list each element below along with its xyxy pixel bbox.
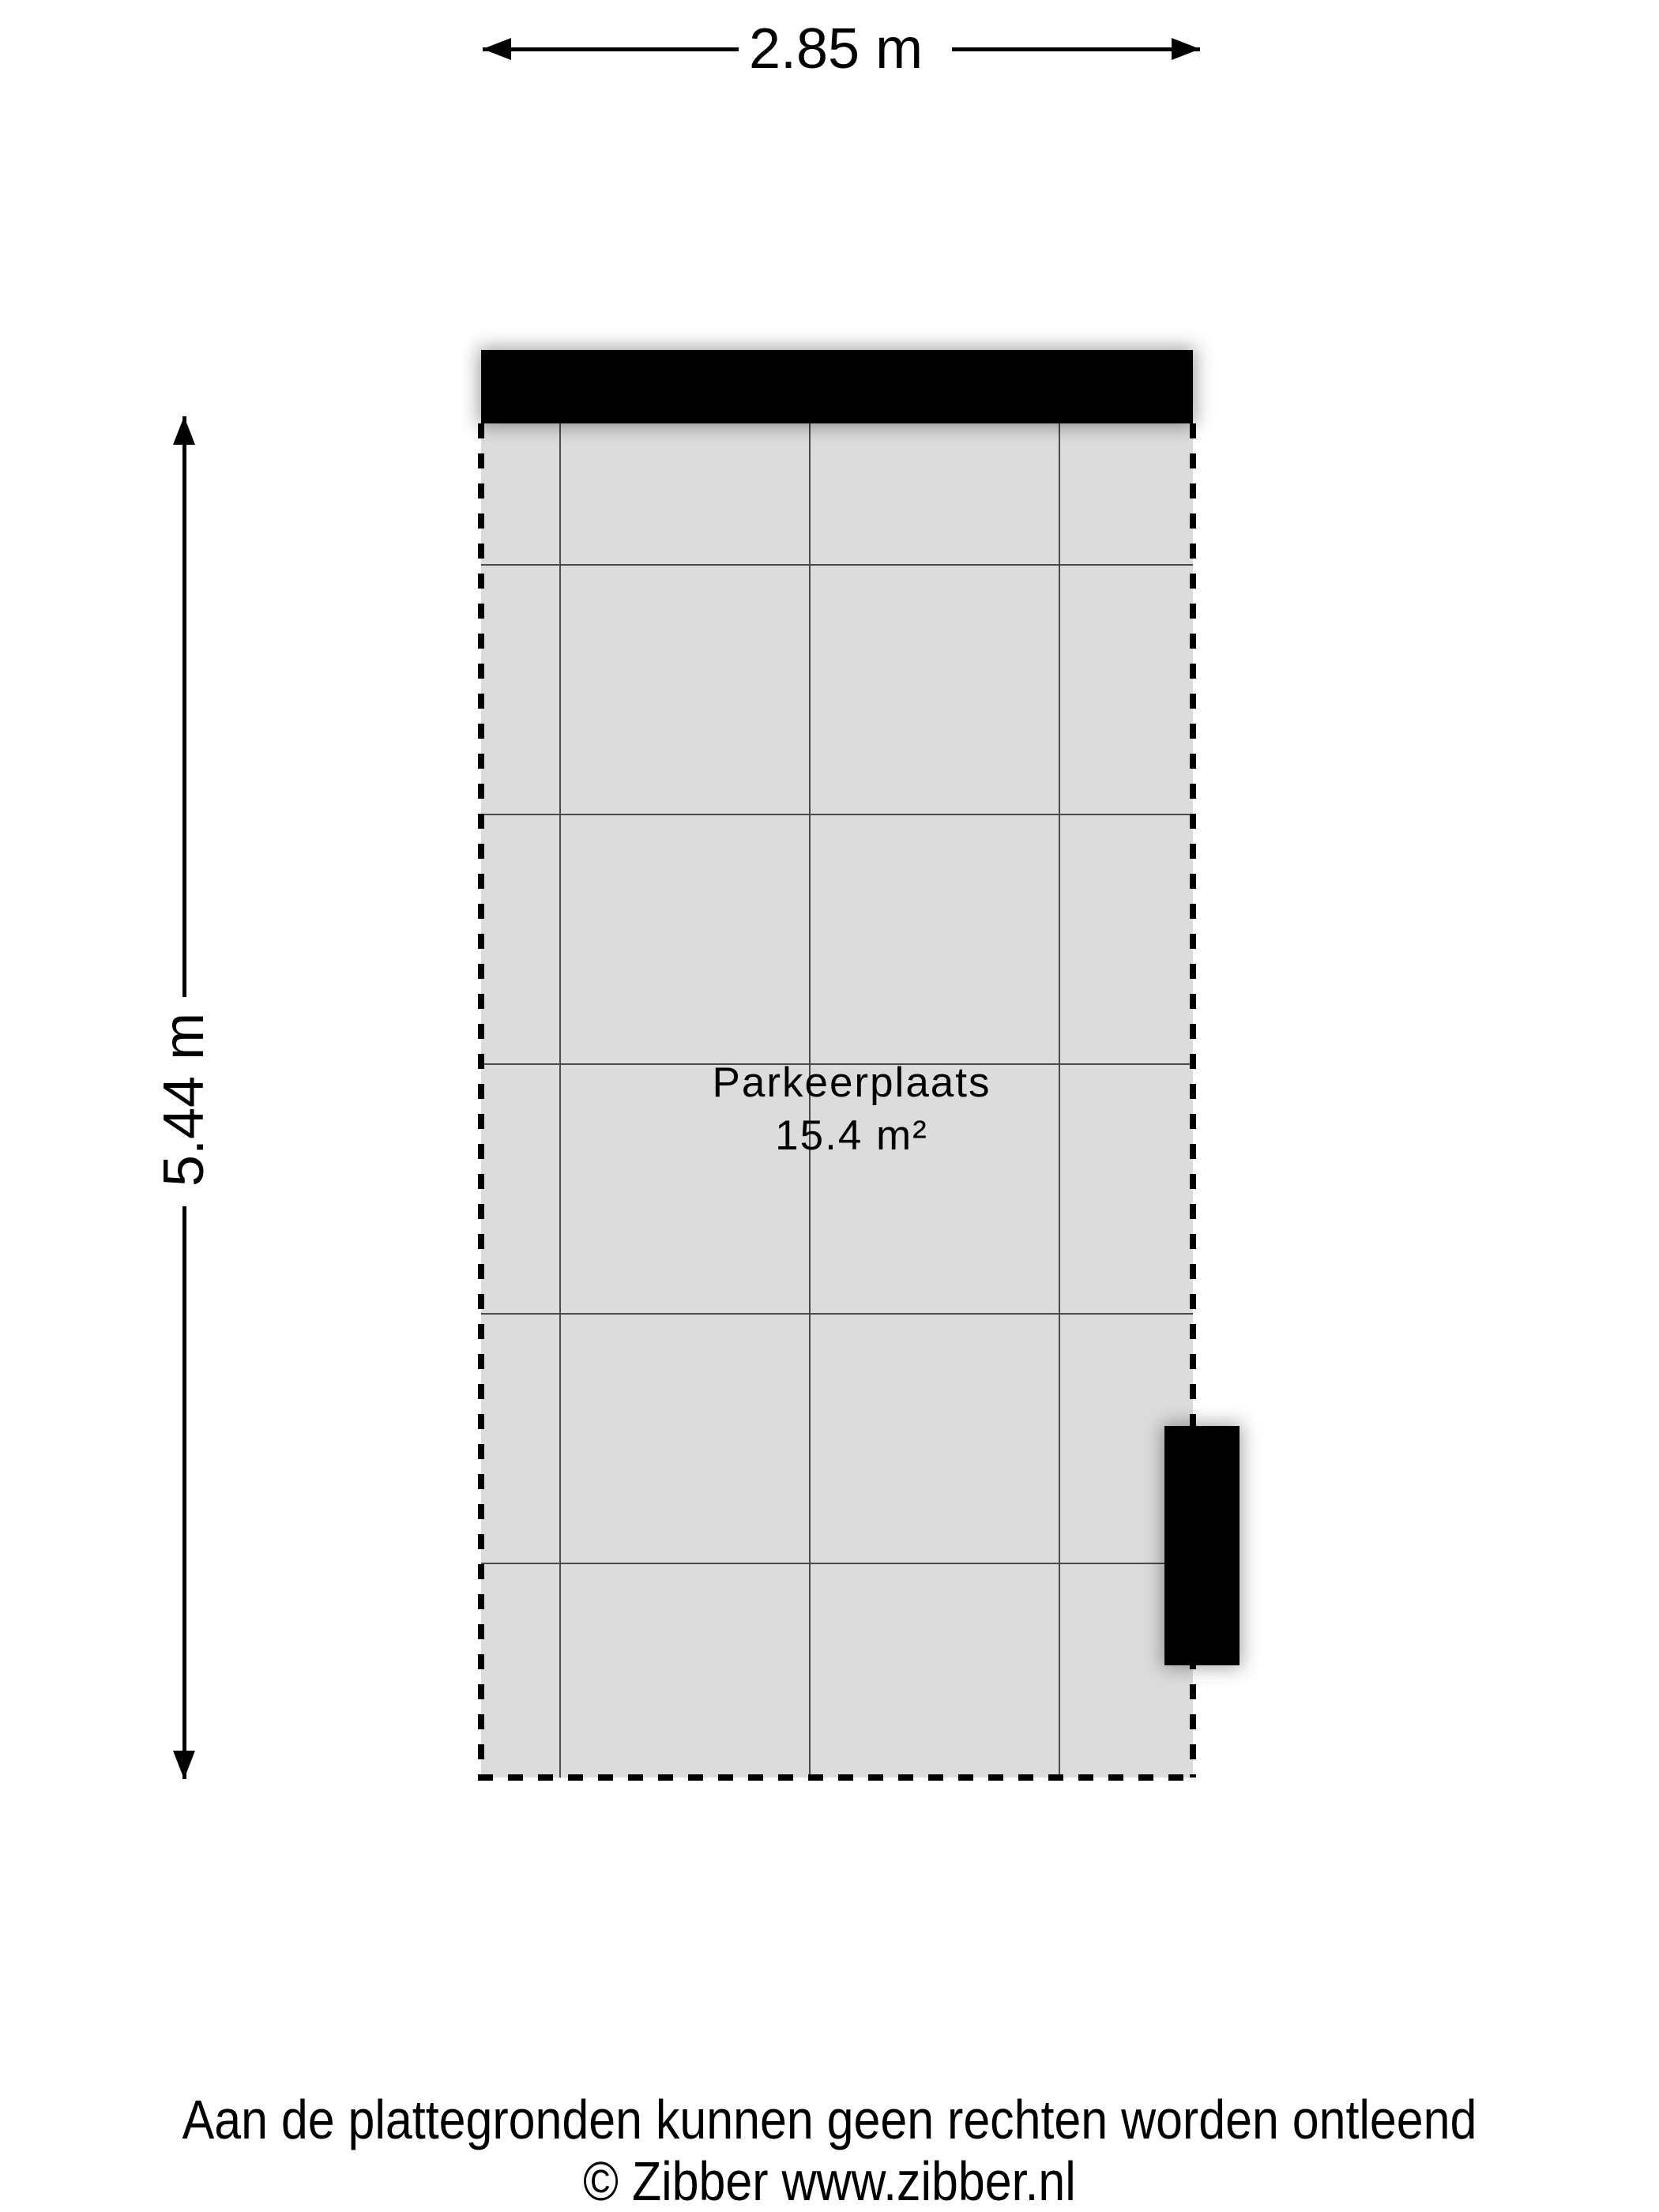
- width-dimension-line-right: [952, 47, 1200, 51]
- room-label: Parkeerplaats 15.4 m²: [712, 1056, 991, 1162]
- height-dimension-label: 5.44 m: [152, 1013, 216, 1187]
- width-dimension-line-left: [483, 47, 739, 51]
- room-name: Parkeerplaats: [712, 1056, 991, 1109]
- width-dimension-label: 2.85 m: [749, 17, 923, 81]
- floorplan-page: { "dimensions": { "width_label": "2.85 m…: [0, 0, 1659, 2212]
- footer: Aan de plattegronden kunnen geen rechten…: [108, 2089, 1552, 2212]
- disclaimer-text: Aan de plattegronden kunnen geen rechten…: [108, 2089, 1552, 2150]
- dashed-border-bottom: [478, 1774, 1196, 1781]
- dashed-border-left: [478, 423, 484, 1777]
- height-dimension-line-top: [182, 416, 186, 997]
- height-dimension-line-bottom: [182, 1206, 186, 1779]
- arrow-down-icon: [173, 1751, 195, 1779]
- arrow-right-icon: [1172, 38, 1200, 60]
- copyright-text: © Zibber www.zibber.nl: [108, 2150, 1552, 2212]
- pillar-wall: [1164, 1426, 1240, 1665]
- room-area: 15.4 m²: [712, 1109, 991, 1162]
- top-wall: [481, 350, 1193, 423]
